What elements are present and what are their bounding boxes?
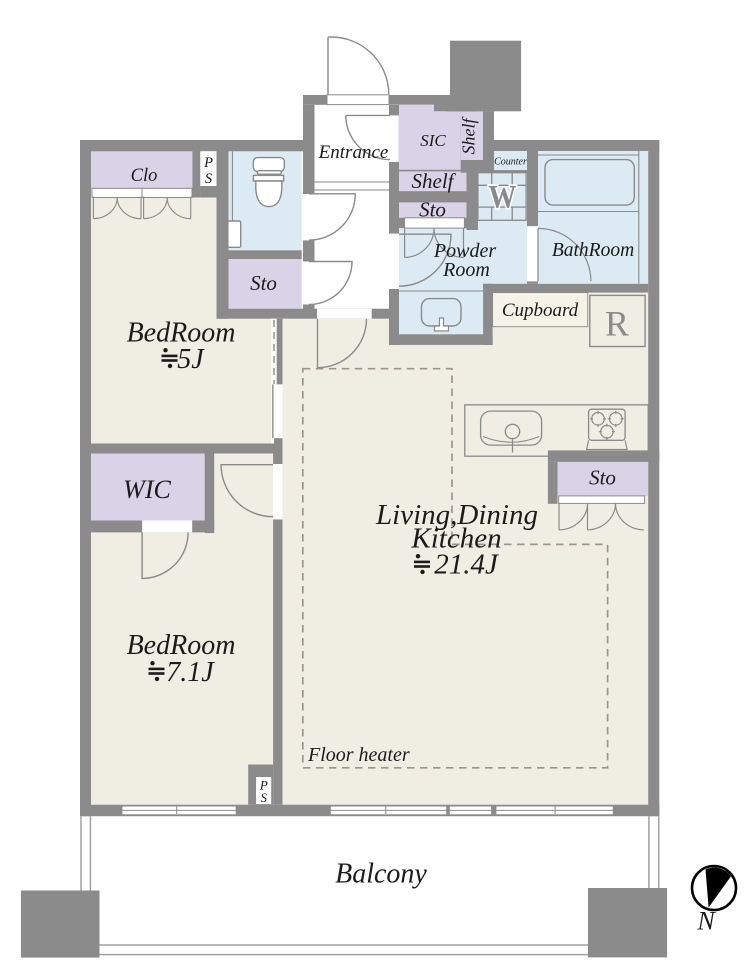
svg-text:S: S (261, 790, 268, 805)
svg-text:7.1J: 7.1J (166, 657, 215, 688)
svg-text:Floor heater: Floor heater (307, 744, 410, 766)
svg-text:S: S (205, 171, 213, 187)
svg-text:Sto: Sto (419, 198, 446, 222)
svg-text:Room: Room (442, 259, 490, 281)
svg-text:N: N (696, 907, 716, 936)
svg-text:R: R (605, 303, 629, 343)
svg-text:Sto: Sto (589, 466, 616, 490)
svg-text:Balcony: Balcony (335, 859, 427, 890)
svg-text:Shelf: Shelf (412, 169, 457, 193)
svg-text:Sto: Sto (250, 271, 277, 295)
svg-text:W: W (488, 179, 516, 215)
svg-text:Entrance: Entrance (318, 142, 389, 163)
svg-text:Counter: Counter (494, 157, 527, 168)
svg-text:5J: 5J (177, 344, 205, 375)
svg-text:Clo: Clo (131, 166, 158, 186)
svg-text:21.4J: 21.4J (434, 549, 499, 581)
svg-text:Cupboard: Cupboard (502, 300, 579, 321)
svg-text:BathRoom: BathRoom (552, 240, 634, 261)
svg-text:WIC: WIC (123, 475, 171, 504)
svg-text:SIC: SIC (420, 131, 446, 150)
svg-text:Shelf: Shelf (459, 116, 479, 155)
svg-text:P: P (203, 155, 213, 171)
